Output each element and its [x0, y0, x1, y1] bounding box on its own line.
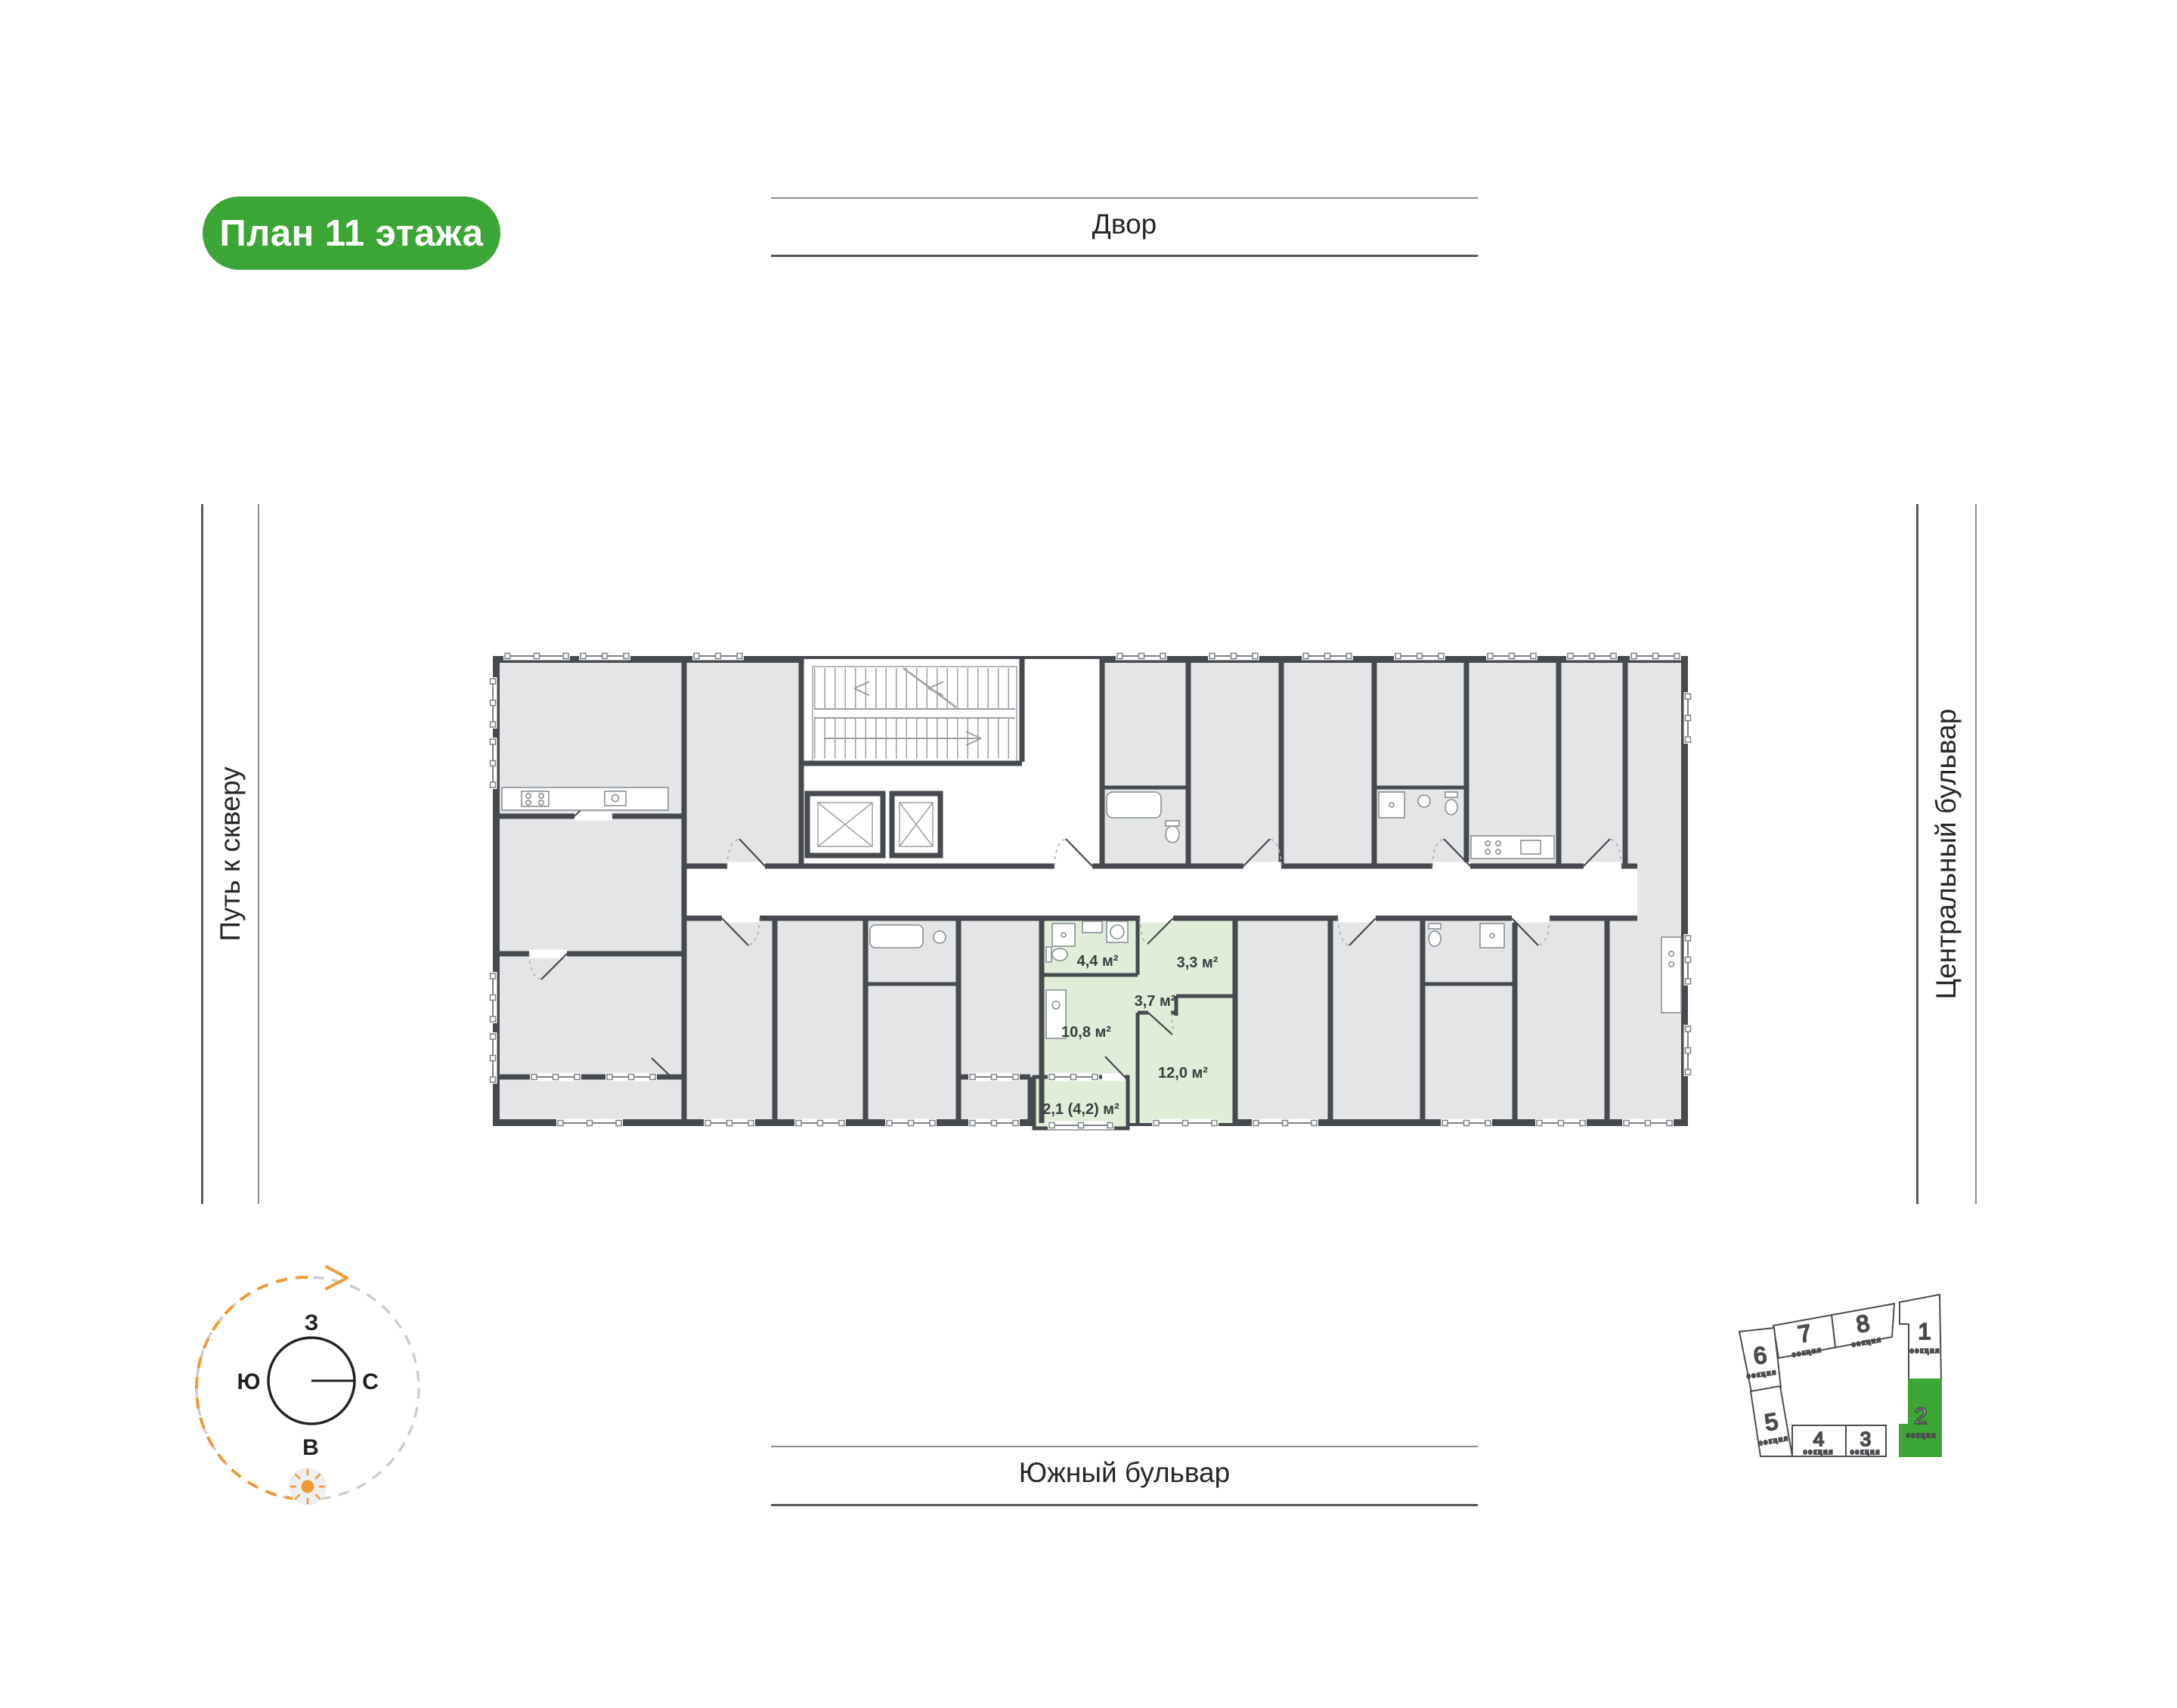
- street-label-bottom: Южный бульвар: [771, 1457, 1478, 1489]
- section-number: 4: [1813, 1428, 1824, 1450]
- compass: З Ю С В: [181, 1258, 446, 1561]
- compass-south: Ю: [237, 1369, 261, 1394]
- room-area-label: 10,8 м²: [1061, 1024, 1111, 1041]
- section-number: 2: [1914, 1403, 1927, 1429]
- section-4[interactable]: 4 секция: [1792, 1425, 1846, 1456]
- section-caption: секция: [1804, 1448, 1835, 1456]
- room-area-label: 2,1 (4,2) м²: [1042, 1101, 1119, 1118]
- section-8[interactable]: 8 секция: [1824, 1293, 1902, 1358]
- floor-plan: 4,4 м² 3,3 м² 3,7 м² 10,8 м² 12,0 м² 2,1…: [484, 635, 1708, 1149]
- room-area-label: 3,3 м²: [1177, 955, 1219, 971]
- section-3[interactable]: 3 секция: [1846, 1425, 1886, 1456]
- sun-icon: [289, 1468, 327, 1505]
- arrow-icon: [327, 1267, 347, 1289]
- road-line-right-inner: [1916, 504, 1918, 1204]
- road-line-bottom-inner: [771, 1504, 1478, 1506]
- section-1[interactable]: 1 секция: [1900, 1295, 1941, 1379]
- section-map: 1 секция 8 секция 7 секция 6 секция 5 се…: [1727, 1281, 1984, 1470]
- road-line-left-outer: [201, 504, 203, 1204]
- street-label-top: Двор: [771, 209, 1478, 240]
- road-line-bottom-outer: [771, 1446, 1478, 1447]
- stairs: [813, 667, 1017, 762]
- elevators: [807, 794, 940, 856]
- section-caption: секция: [1910, 1347, 1941, 1354]
- section-2-active[interactable]: 2 секция: [1900, 1379, 1941, 1456]
- compass-west: З: [305, 1310, 319, 1335]
- compass-north: С: [362, 1369, 379, 1394]
- street-label-right: Центральный бульвар: [1931, 709, 1962, 1000]
- road-line-right-outer: [1975, 504, 1977, 1204]
- room-area-label: 12,0 м²: [1158, 1065, 1208, 1081]
- section-number: 3: [1860, 1428, 1871, 1450]
- section-number: 1: [1918, 1318, 1931, 1344]
- room-area-label: 3,7 м²: [1135, 993, 1176, 1010]
- corridor: [684, 866, 1637, 915]
- road-line-left-inner: [258, 504, 259, 1204]
- road-line-top-inner: [771, 255, 1478, 257]
- room-area-label: 4,4 м²: [1077, 953, 1119, 970]
- floor-plan-badge: План 11 этажа: [203, 196, 500, 270]
- section-caption: секция: [1906, 1431, 1937, 1439]
- street-label-left: Путь к скверу: [215, 766, 246, 941]
- road-line-top-outer: [771, 197, 1478, 199]
- compass-east: В: [302, 1435, 319, 1460]
- section-caption: секция: [1850, 1448, 1881, 1456]
